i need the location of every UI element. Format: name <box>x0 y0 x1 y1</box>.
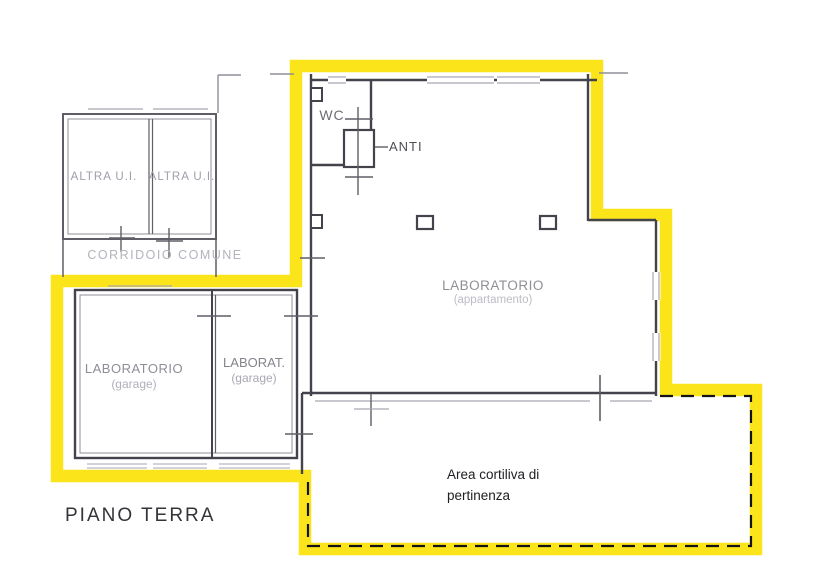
floor-plan: WC ANTI ALTRA U.I. ALTRA U.I. CORRIDOIO … <box>0 0 838 561</box>
label-area-cortiliva-line2: pertinenza <box>447 485 539 506</box>
label-corridoio-comune: CORRIDOIO COMUNE <box>83 248 247 262</box>
pillar <box>540 216 556 229</box>
laboratorio-walls <box>300 74 661 474</box>
label-area-cortiliva-line1: Area cortiliva di <box>447 464 539 485</box>
label-laboratorio-appartamento-sub: (appartamento) <box>413 294 573 306</box>
pilaster <box>311 88 322 101</box>
pillar <box>417 216 433 229</box>
label-laborat-garage-sub: (garage) <box>203 371 305 385</box>
anti-room-box <box>344 130 374 167</box>
pilaster <box>311 215 322 228</box>
label-laborat-garage: LABORAT. <box>203 355 305 370</box>
label-wc: WC <box>312 107 352 123</box>
label-laboratorio-garage: LABORATORIO <box>63 361 205 376</box>
label-anti: ANTI <box>389 139 423 154</box>
label-piano-terra: PIANO TERRA <box>65 505 215 527</box>
label-altra-ui-1: ALTRA U.I. <box>64 171 144 183</box>
label-area-cortiliva: Area cortiliva di pertinenza <box>447 464 539 506</box>
label-laboratorio-appartamento: LABORATORIO <box>413 278 573 293</box>
label-altra-ui-2: ALTRA U.I. <box>142 171 222 183</box>
label-laboratorio-garage-sub: (garage) <box>63 377 205 391</box>
